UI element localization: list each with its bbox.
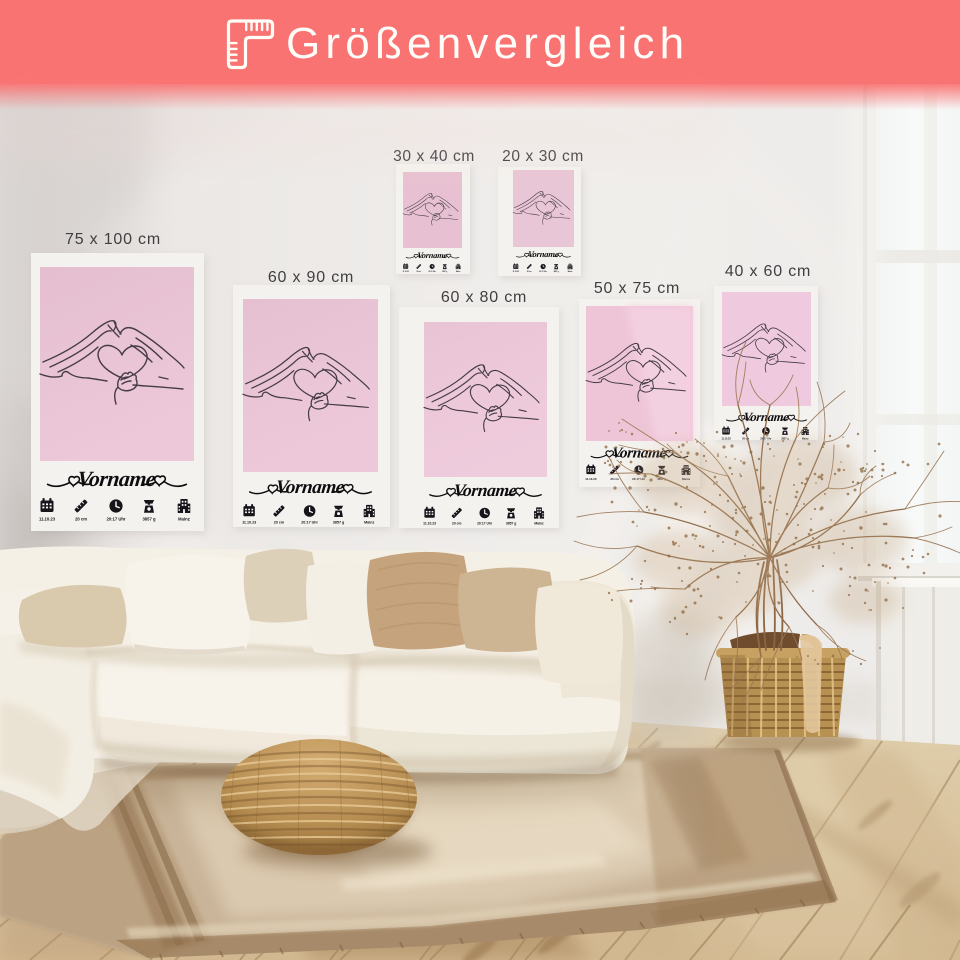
- svg-text:75 x 100 cm: 75 x 100 cm: [65, 231, 161, 248]
- svg-text:60 x 80 cm: 60 x 80 cm: [441, 289, 527, 306]
- svg-text:Größenvergleich: Größenvergleich: [286, 19, 689, 68]
- svg-text:40 x 60 cm: 40 x 60 cm: [725, 263, 811, 280]
- svg-text:50 x 75 cm: 50 x 75 cm: [594, 280, 680, 297]
- svg-text:60 x 90 cm: 60 x 90 cm: [268, 269, 354, 286]
